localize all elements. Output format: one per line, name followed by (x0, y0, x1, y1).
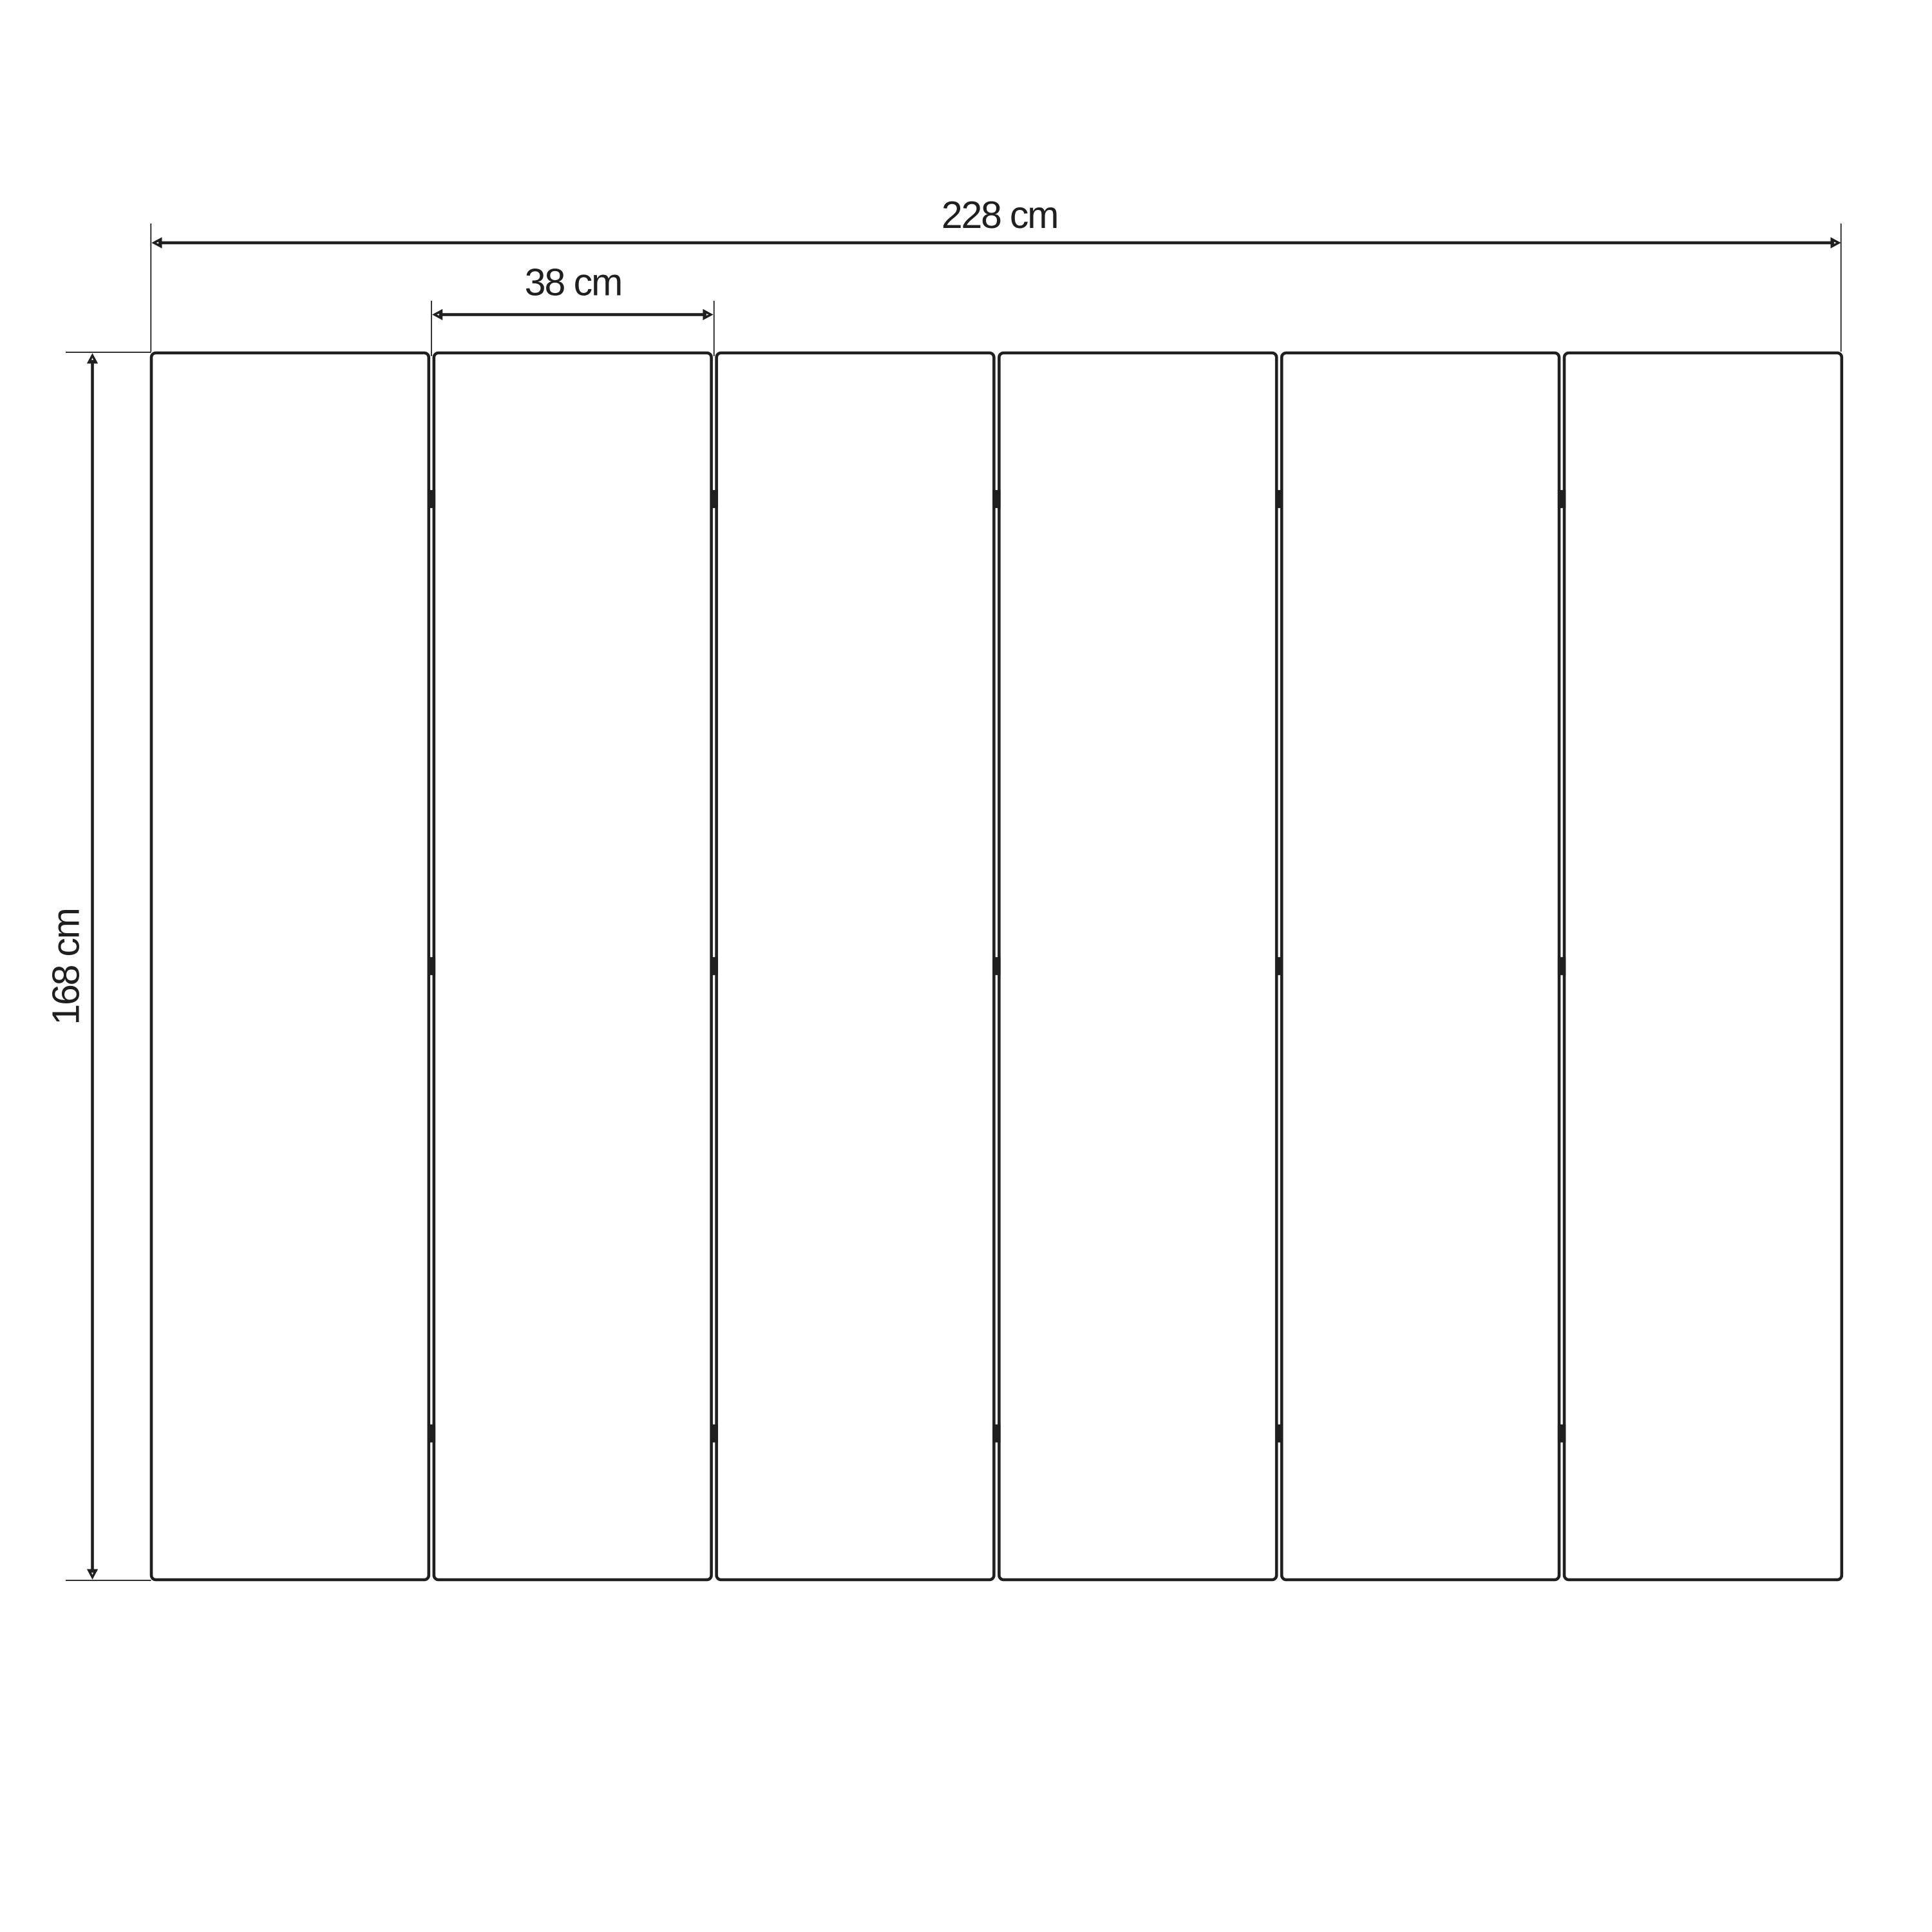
svg-text:38 cm: 38 cm (525, 261, 622, 304)
svg-text:168 cm: 168 cm (45, 909, 88, 1025)
svg-text:228 cm: 228 cm (942, 194, 1057, 236)
